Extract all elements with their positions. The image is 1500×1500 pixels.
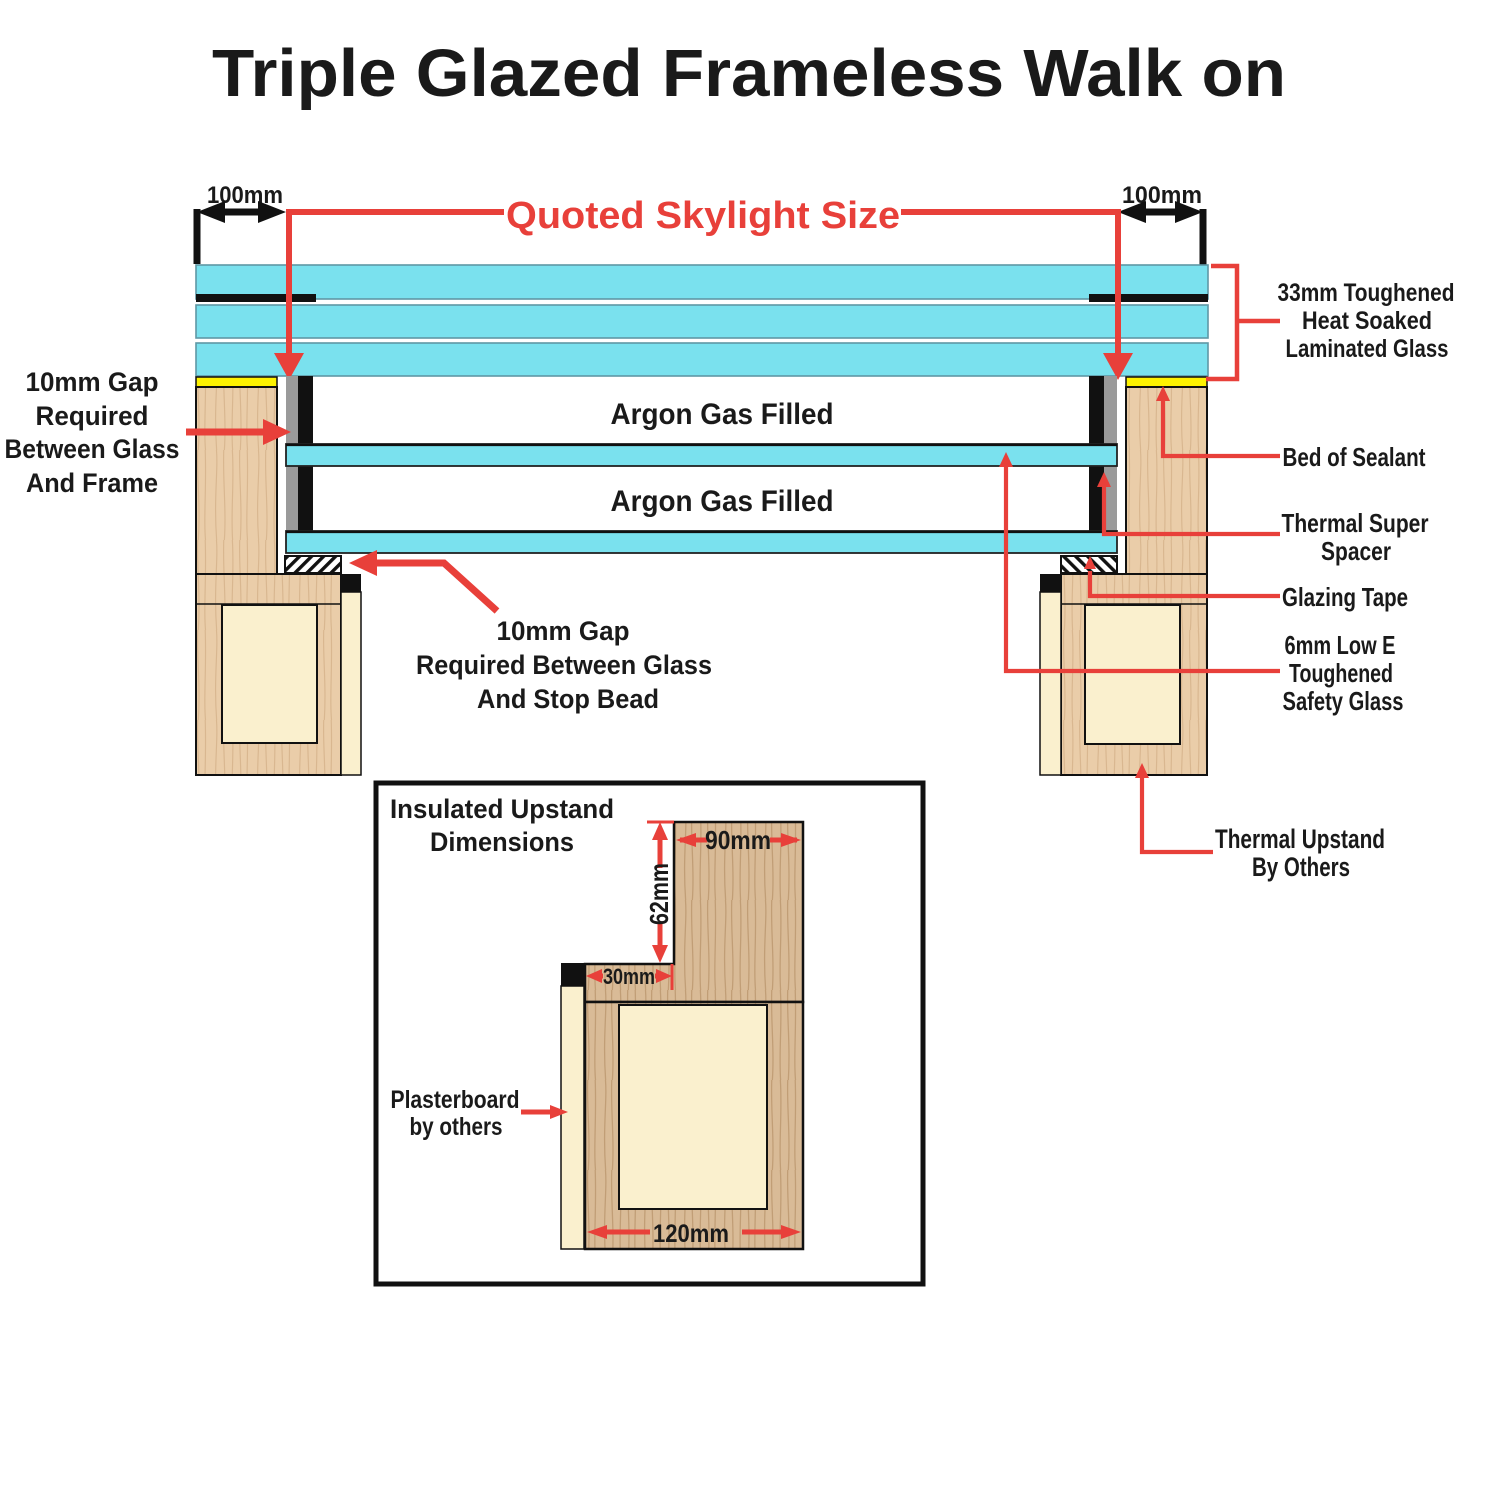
svg-text:90mm: 90mm <box>705 825 771 855</box>
svg-text:Glazing Tape: Glazing Tape <box>1282 582 1408 612</box>
svg-text:Argon Gas Filled: Argon Gas Filled <box>611 398 834 431</box>
svg-text:Spacer: Spacer <box>1321 536 1391 566</box>
svg-text:Toughened: Toughened <box>1289 658 1393 688</box>
svg-text:6mm Low E: 6mm Low E <box>1285 630 1396 660</box>
svg-text:Quoted Skylight Size: Quoted Skylight Size <box>506 195 900 237</box>
svg-text:Argon Gas Filled: Argon Gas Filled <box>611 485 834 518</box>
svg-text:Laminated Glass: Laminated Glass <box>1286 335 1449 363</box>
svg-text:And Frame: And Frame <box>26 468 158 498</box>
svg-text:62mm: 62mm <box>644 863 674 925</box>
svg-text:10mm Gap: 10mm Gap <box>497 616 630 646</box>
svg-text:Required: Required <box>36 401 149 431</box>
svg-text:Plasterboard: Plasterboard <box>391 1086 520 1114</box>
svg-text:Thermal Super: Thermal Super <box>1282 508 1429 538</box>
svg-text:100mm: 100mm <box>1122 182 1202 209</box>
svg-text:Safety Glass: Safety Glass <box>1283 686 1404 716</box>
svg-text:Triple Glazed Frameless Walk o: Triple Glazed Frameless Walk on <box>212 36 1286 111</box>
svg-text:33mm Toughened: 33mm Toughened <box>1278 279 1455 307</box>
svg-text:30mm: 30mm <box>603 964 655 989</box>
svg-text:Thermal Upstand: Thermal Upstand <box>1215 824 1385 854</box>
svg-text:Dimensions: Dimensions <box>430 827 574 857</box>
svg-text:120mm: 120mm <box>653 1220 729 1248</box>
svg-text:By Others: By Others <box>1252 852 1350 882</box>
svg-text:Heat Soaked: Heat Soaked <box>1302 307 1432 335</box>
svg-text:Required Between Glass: Required Between Glass <box>416 650 712 680</box>
svg-text:Between Glass: Between Glass <box>5 434 180 464</box>
svg-text:Bed of Sealant: Bed of Sealant <box>1283 442 1426 472</box>
svg-text:Insulated Upstand: Insulated Upstand <box>390 794 614 824</box>
svg-text:by others: by others <box>410 1113 503 1141</box>
svg-text:10mm Gap: 10mm Gap <box>26 367 159 397</box>
svg-text:And Stop Bead: And Stop Bead <box>477 684 659 714</box>
